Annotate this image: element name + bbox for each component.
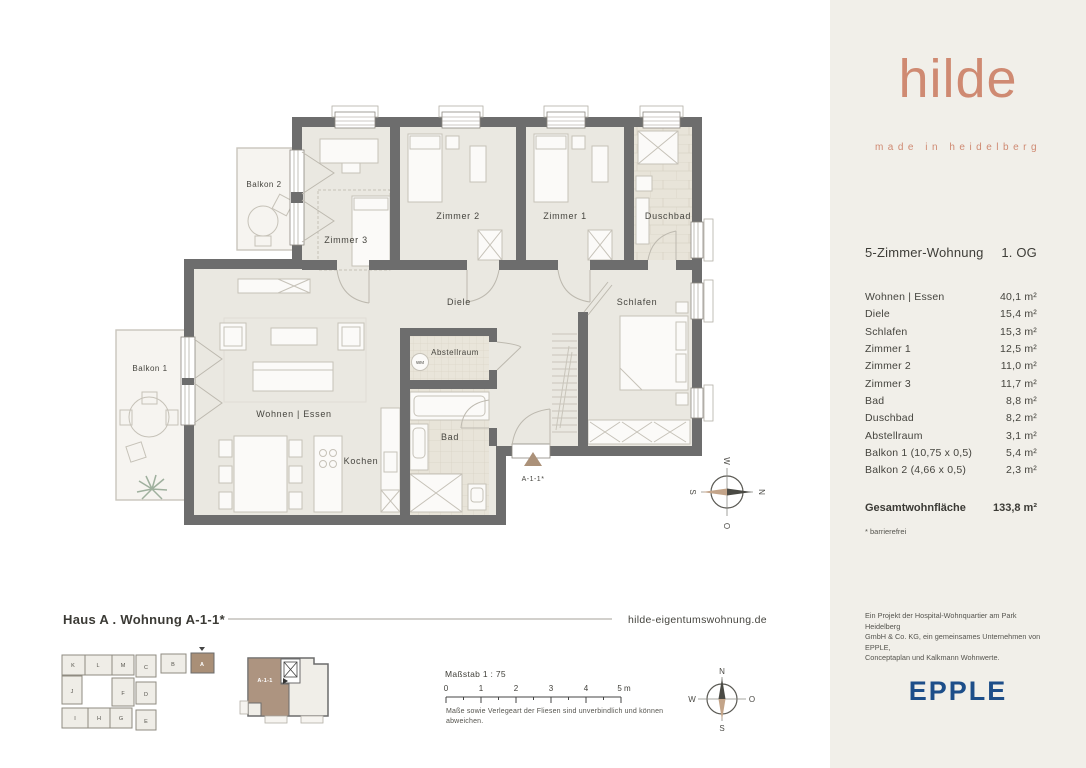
- washer-label: WM: [416, 360, 424, 365]
- svg-text:3: 3: [549, 684, 554, 693]
- unit-type: 5-Zimmer-Wohnung: [865, 245, 984, 260]
- svg-text:1: 1: [479, 684, 484, 693]
- label-zimmer2: Zimmer 2: [436, 211, 480, 221]
- site-plan: [62, 647, 214, 730]
- compass-footer-s: S: [719, 724, 724, 733]
- compass-plan-o: O: [722, 523, 731, 529]
- scale-bar: Maßstab 1 : 75 0 1 2 3 4 5 m Maße sowie …: [444, 669, 664, 725]
- label-balkon2: Balkon 2: [246, 180, 281, 189]
- label-bad: Bad: [441, 432, 459, 442]
- room-row: Bad8,8 m²: [865, 393, 1037, 410]
- window-right-2: [691, 280, 713, 322]
- website-link[interactable]: hilde-eigentumswohnung.de: [628, 614, 767, 626]
- svg-text:C: C: [144, 665, 148, 671]
- sidebar: hilde made in heidelberg 5-Zimmer-Wohnun…: [830, 0, 1086, 768]
- svg-text:G: G: [119, 716, 123, 722]
- unit-key-plan: A-1-1: [240, 658, 328, 723]
- hilde-logo: hilde: [830, 48, 1086, 110]
- legal-text: Ein Projekt der Hospital-Wohnquartier am…: [865, 611, 1048, 664]
- room-list: Wohnen | Essen40,1 m² Diele15,4 m² Schla…: [865, 289, 1037, 480]
- scale-label: Maßstab 1 : 75: [445, 669, 506, 679]
- room-row: Diele15,4 m²: [865, 306, 1037, 323]
- total-value: 133,8 m²: [993, 502, 1037, 514]
- unit-key-label: A-1-1: [257, 678, 272, 684]
- sideboard: [238, 279, 310, 293]
- window-top-2: [439, 106, 483, 128]
- window-right-3: [691, 385, 713, 421]
- label-zimmer1: Zimmer 1: [543, 211, 587, 221]
- epple-logo: EPPLE: [830, 676, 1086, 707]
- cabinet-x: [381, 490, 400, 512]
- label-zimmer3: Zimmer 3: [324, 235, 368, 245]
- svg-text:A: A: [200, 662, 204, 668]
- floorplan-sheet: WM: [0, 0, 1086, 768]
- unit-floor: 1. OG: [1001, 245, 1037, 260]
- sheet-title: Haus A . Wohnung A-1-1*: [63, 612, 226, 627]
- svg-text:0: 0: [444, 684, 449, 693]
- entry-marker-label: A-1-1*: [522, 476, 545, 483]
- room-row: Duschbad8,2 m²: [865, 410, 1037, 427]
- disclaimer-line2: abweichen.: [446, 718, 483, 725]
- compass-plan-n: N: [757, 489, 766, 495]
- wardrobe-z2: [478, 230, 502, 260]
- compass-footer-w: W: [688, 695, 696, 704]
- room-row: Zimmer 311,7 m²: [865, 376, 1037, 393]
- logo-tagline: made in heidelberg: [830, 142, 1086, 153]
- wardrobe-z1: [588, 230, 612, 260]
- wardrobe-schlafen: [588, 420, 690, 444]
- label-duschbad: Duschbad: [645, 211, 691, 221]
- label-abstellraum: Abstellraum: [431, 348, 479, 357]
- disclaimer-line1: Maße sowie Verlegeart der Fliesen sind u…: [446, 708, 663, 715]
- svg-text:J: J: [71, 689, 74, 695]
- svg-text:L: L: [96, 663, 99, 669]
- compass-footer-icon: N O S W: [688, 667, 755, 733]
- svg-text:D: D: [144, 692, 148, 698]
- svg-text:5 m: 5 m: [617, 684, 631, 693]
- svg-text:K: K: [71, 663, 75, 669]
- label-schlafen: Schlafen: [617, 297, 658, 307]
- svg-text:H: H: [97, 716, 101, 722]
- svg-text:E: E: [144, 719, 148, 725]
- label-diele: Diele: [447, 297, 471, 307]
- total-area-row: Gesamtwohnfläche 133,8 m²: [865, 502, 1037, 514]
- shower-duschbad: [638, 131, 678, 164]
- room-row: Schlafen15,3 m²: [865, 324, 1037, 341]
- svg-text:4: 4: [584, 684, 589, 693]
- room-row: Wohnen | Essen40,1 m²: [865, 289, 1037, 306]
- unit-header: 5-Zimmer-Wohnung 1. OG: [865, 245, 1037, 260]
- label-wohnen-essen: Wohnen | Essen: [256, 409, 332, 419]
- svg-text:2: 2: [514, 684, 519, 693]
- total-label: Gesamtwohnfläche: [865, 502, 966, 514]
- room-row: Abstellraum3,1 m²: [865, 428, 1037, 445]
- svg-text:B: B: [171, 662, 175, 668]
- compass-footer-o: O: [749, 695, 755, 704]
- compass-footer-n: N: [719, 667, 725, 676]
- label-balkon1: Balkon 1: [132, 364, 167, 373]
- compass-plan-icon: W N S O: [688, 457, 766, 529]
- room-row: Balkon 1 (10,75 x 0,5)5,4 m²: [865, 445, 1037, 462]
- balcony-1: [116, 330, 186, 500]
- window-top-4: [640, 106, 683, 128]
- window-right-1: [691, 219, 713, 261]
- room-row: Zimmer 211,0 m²: [865, 358, 1037, 375]
- label-kochen: Kochen: [344, 456, 379, 466]
- shower-bad: [410, 474, 462, 512]
- site-marker-icon: [199, 647, 205, 651]
- balcony-2: [237, 148, 294, 250]
- footnote: * barrierefrei: [865, 527, 906, 536]
- compass-plan-w: W: [722, 457, 731, 465]
- window-top-1: [332, 106, 378, 128]
- compass-plan-s: S: [688, 489, 697, 494]
- svg-text:M: M: [121, 663, 126, 669]
- room-row: Balkon 2 (4,66 x 0,5)2,3 m²: [865, 462, 1037, 479]
- floor-plan-svg: WM: [0, 0, 830, 768]
- window-top-3: [544, 106, 588, 128]
- room-row: Zimmer 112,5 m²: [865, 341, 1037, 358]
